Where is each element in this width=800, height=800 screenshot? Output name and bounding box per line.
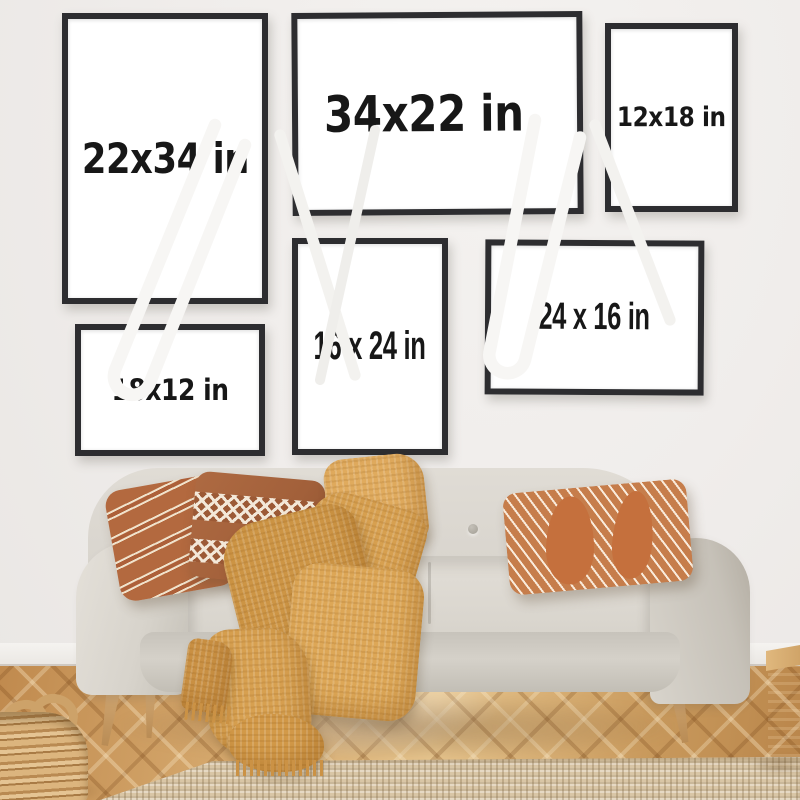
pillow-solid-shape (609, 490, 657, 581)
blanket-fringe (236, 760, 326, 776)
diagonal-stripe-pillow (502, 478, 694, 596)
backrest-button-tuft (468, 524, 478, 534)
basket-liner (6, 706, 70, 732)
pillow-solid-shape (546, 496, 595, 585)
living-room-photo: 22x34 in 34x22 in 12x18 in 16 x 24 in 24… (0, 0, 800, 800)
seat-cushion-seam (428, 562, 431, 624)
hairpin-legs (0, 0, 800, 405)
wood-cube (768, 662, 800, 766)
